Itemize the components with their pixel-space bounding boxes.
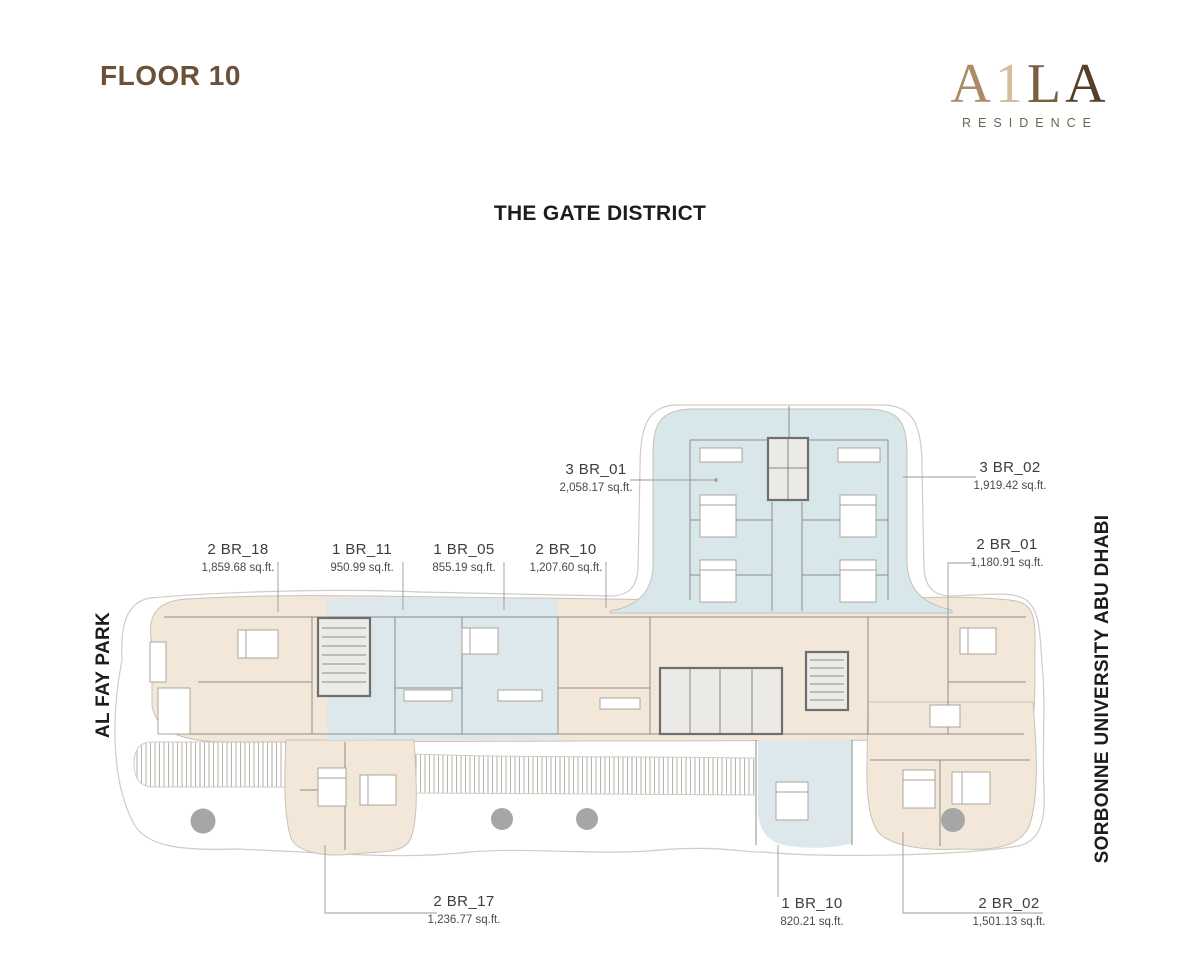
unit-name: 2 BR_01 [947, 536, 1067, 553]
unit-name: 3 BR_01 [536, 461, 656, 478]
unit-area: 1,919.42 sq.ft. [950, 479, 1070, 493]
unit-area: 1,859.68 sq.ft. [178, 561, 298, 575]
unit-label-3br02: 3 BR_02 1,919.42 sq.ft. [950, 459, 1070, 493]
brand-logo: A1LA RESIDENCE [945, 54, 1115, 130]
unit-area: 1,501.13 sq.ft. [949, 915, 1069, 929]
unit-area: 2,058.17 sq.ft. [536, 481, 656, 495]
unit-label-2br02: 2 BR_02 1,501.13 sq.ft. [949, 895, 1069, 929]
floor-title: FLOOR 10 [100, 60, 241, 92]
unit-area: 1,207.60 sq.ft. [506, 561, 626, 575]
unit-label-2br01: 2 BR_01 1,180.91 sq.ft. [947, 536, 1067, 570]
unit-name: 2 BR_17 [404, 893, 524, 910]
unit-label-3br01: 3 BR_01 2,058.17 sq.ft. [536, 461, 656, 495]
floor-plan-page: FLOOR 10 A1LA RESIDENCE THE GATE DISTRIC… [0, 0, 1200, 960]
unit-name: 2 BR_10 [506, 541, 626, 558]
unit-area: 820.21 sq.ft. [752, 915, 872, 929]
district-heading: THE GATE DISTRICT [440, 202, 760, 226]
unit-label-2br18: 2 BR_18 1,859.68 sq.ft. [178, 541, 298, 575]
unit-name: 2 BR_02 [949, 895, 1069, 912]
middle-wing [285, 740, 416, 855]
unit-label-2br17: 2 BR_17 1,236.77 sq.ft. [404, 893, 524, 927]
unit-name: 2 BR_18 [178, 541, 298, 558]
brand-logo-word: A1LA [945, 54, 1115, 114]
unit-name: 1 BR_10 [752, 895, 872, 912]
unit-name: 3 BR_02 [950, 459, 1070, 476]
unit-label-2br10: 2 BR_10 1,207.60 sq.ft. [506, 541, 626, 575]
landmark-sorbonne-university: SORBONNE UNIVERSITY ABU DHABI [1092, 504, 1114, 874]
landmark-al-fay-park: AL FAY PARK [93, 590, 115, 760]
brand-logo-subtitle: RESIDENCE [945, 116, 1115, 130]
unit-area: 1,180.91 sq.ft. [947, 556, 1067, 570]
unit-area: 1,236.77 sq.ft. [404, 913, 524, 927]
unit-label-1br10: 1 BR_10 820.21 sq.ft. [752, 895, 872, 929]
